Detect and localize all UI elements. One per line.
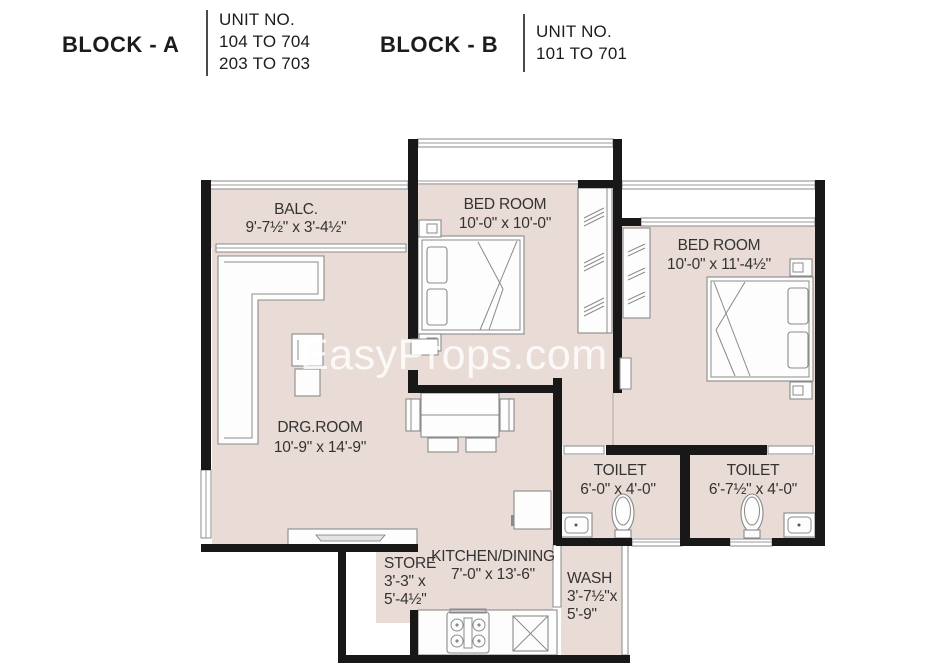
- bedroom2-label: BED ROOM: [678, 237, 761, 254]
- store-dim-1: 3'-3" x: [384, 573, 426, 590]
- wash-label: WASH: [567, 570, 612, 587]
- wardrobe-2: [623, 228, 650, 318]
- passage-floor: [556, 385, 622, 446]
- wc-1: [612, 494, 634, 538]
- wash-outer-partition: [622, 545, 628, 655]
- drawing-room-label: DRG.ROOM: [277, 419, 362, 436]
- balcony-floor: [210, 188, 408, 248]
- balcony-dim: 9'-7½" x 3'-4½": [246, 219, 347, 236]
- bedroom1-dim: 10'-0" x 10'-0": [459, 215, 551, 232]
- kitchen-sink: [513, 616, 548, 651]
- toilet1-dim: 6'-0" x 4'-0": [580, 481, 656, 498]
- toilet1-label: TOILET: [594, 462, 648, 479]
- wash-dim-2: 5'-9": [567, 606, 597, 623]
- bed-2: [707, 259, 813, 399]
- kitchen-dim: 7'-0" x 13'-6": [451, 566, 535, 583]
- drawing-room-dim: 10'-9" x 14'-9": [274, 439, 366, 456]
- watermark: EasyProps.com: [300, 331, 630, 380]
- wardrobe-1: [578, 188, 612, 333]
- refrigerator: [511, 491, 551, 529]
- toilet1-door: [564, 446, 604, 454]
- bedroom2-dim: 10'-0" x 11'-4½": [667, 256, 771, 273]
- wash-dim-1: 3'-7½"x: [567, 588, 618, 605]
- toilet2-dim: 6'-7½" x 4'-0": [709, 481, 797, 498]
- tv-unit: [288, 529, 417, 546]
- balcony-label: BALC.: [274, 201, 318, 218]
- store-label: STORE: [384, 555, 436, 572]
- store-dim-2: 5'-4½": [384, 591, 427, 608]
- kitchen-label: KITCHEN/DINING: [431, 548, 555, 565]
- washbasin-1: [561, 513, 592, 537]
- wc-2: [741, 494, 763, 538]
- bedroom1-label: BED ROOM: [464, 196, 547, 213]
- floor-plan-page: BLOCK - A UNIT NO. 104 TO 704 203 TO 703…: [0, 0, 927, 669]
- stove: [447, 609, 489, 653]
- toilet2-label: TOILET: [727, 462, 781, 479]
- washbasin-2: [784, 513, 815, 537]
- toilet2-door: [768, 446, 813, 454]
